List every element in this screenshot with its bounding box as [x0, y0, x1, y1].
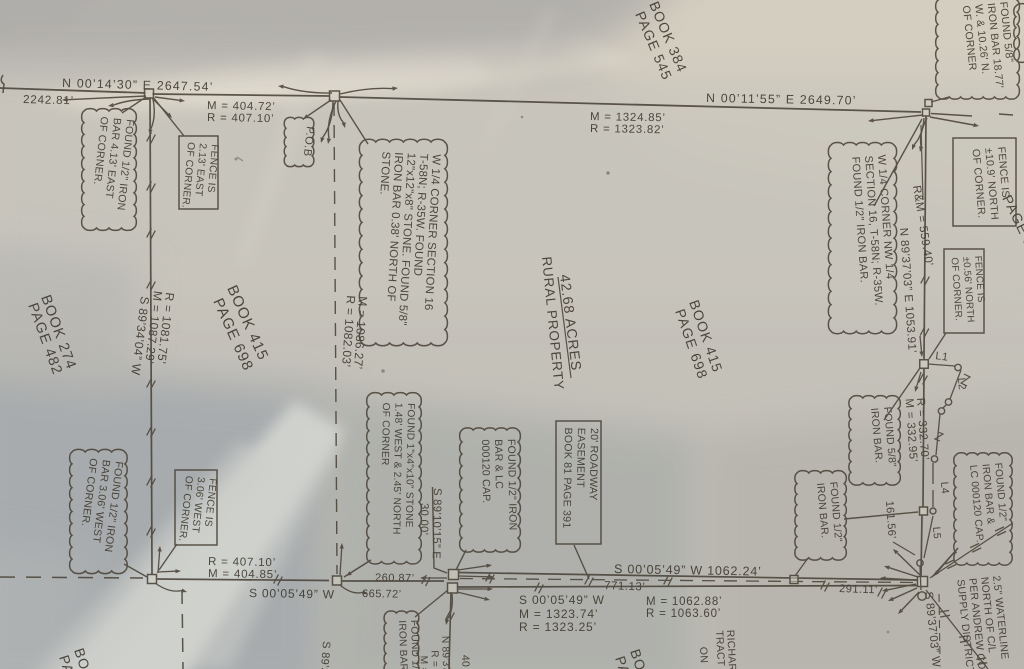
svg-text:2.5" WATERLINE NORTH OF C/L PE: 2.5" WATERLINE NORTH OF C/L PER ANDREW C…: [954, 575, 1012, 669]
svg-text:R = 1323.82’: R = 1323.82’: [590, 123, 665, 136]
svg-text:40: 40: [459, 655, 471, 668]
svg-text:FOUND 1/2" IRON BAR.: FOUND 1/2" IRON BAR.: [396, 620, 421, 669]
svg-text:M = 404.85’: M = 404.85’: [208, 568, 277, 581]
svg-text:R = 1063.60’: R = 1063.60’: [646, 608, 721, 620]
svg-text:M = 1086.27’ R = 1082.03’: M = 1086.27’ R = 1082.03’: [339, 295, 370, 373]
svg-text:771.13’: 771.13’: [604, 580, 646, 593]
svg-text:L2: L2: [955, 377, 968, 390]
svg-text:N 00’11’55” E 2649.70’: N 00’11’55” E 2649.70’: [706, 91, 857, 108]
svg-text:RICHARDSON TRACT 1: RICHARDSON TRACT 1: [713, 630, 740, 669]
svg-text:665.72’: 665.72’: [362, 588, 402, 601]
svg-text:L5: L5: [930, 526, 943, 539]
svg-text:30.00’: 30.00’: [417, 503, 430, 536]
svg-text:S 00’05’49” W 1062.24’: S 00’05’49” W 1062.24’: [614, 562, 762, 579]
svg-text:ON: ON: [697, 647, 710, 664]
svg-text:M = 1323.74’: M = 1323.74’: [519, 607, 598, 621]
svg-text:R = 1323.25’: R = 1323.25’: [519, 620, 597, 634]
svg-text:S 89’10’15” E: S 89’10’15” E: [430, 488, 443, 559]
svg-text:291.11’: 291.11’: [839, 583, 878, 596]
svg-text:R = 407.10’: R = 407.10’: [207, 112, 275, 125]
svg-text:2242.81’: 2242.81’: [23, 93, 74, 107]
svg-text:L4: L4: [938, 481, 951, 494]
svg-text:260.87’: 260.87’: [375, 572, 415, 585]
svg-text:M = 1062.88’: M = 1062.88’: [646, 596, 722, 608]
svg-text:R = 332.70’ M = 332.95’: R = 332.70’ M = 332.95’: [903, 397, 931, 464]
svg-text:L1: L1: [935, 350, 950, 364]
svg-text:S 00’05’49” W: S 00’05’49” W: [249, 586, 335, 601]
svg-text:S 00’05’49” W: S 00’05’49” W: [519, 593, 605, 607]
